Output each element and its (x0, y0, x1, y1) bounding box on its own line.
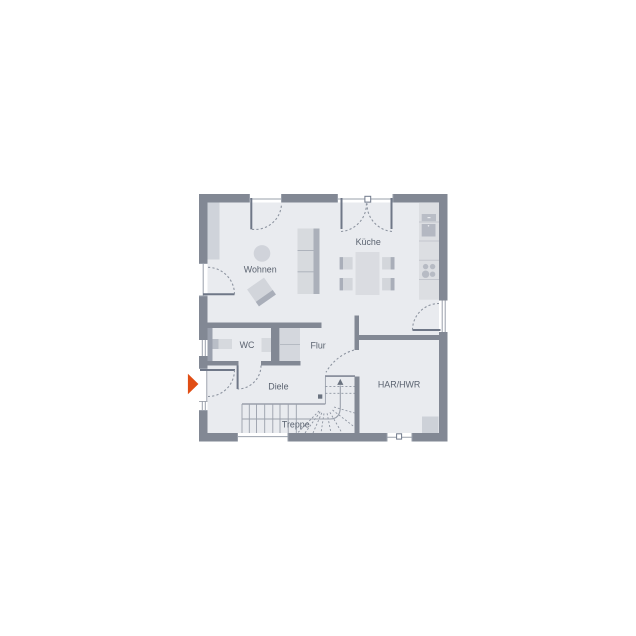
svg-text:Wohnen: Wohnen (244, 264, 277, 274)
svg-text:Treppe: Treppe (282, 419, 310, 429)
svg-text:Küche: Küche (356, 237, 381, 247)
svg-text:Diele: Diele (268, 381, 288, 391)
svg-text:HAR/HWR: HAR/HWR (378, 380, 420, 390)
svg-text:WC: WC (240, 340, 255, 350)
svg-text:Flur: Flur (310, 341, 325, 351)
